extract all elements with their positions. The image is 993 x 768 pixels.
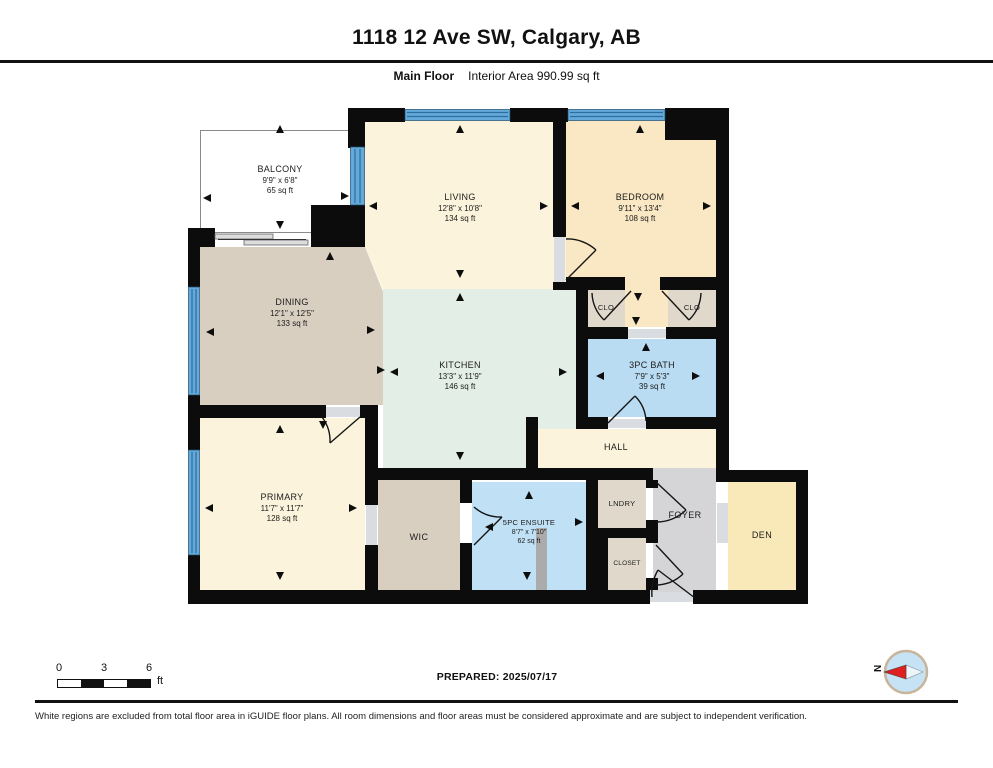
prepared-date: PREPARED: 2025/07/17 xyxy=(437,671,558,683)
scale-bar: 0 3 6 ft xyxy=(57,662,187,694)
compass-icon: N xyxy=(868,644,938,702)
disclaimer-text: White regions are excluded from total fl… xyxy=(35,711,807,722)
room-label-bath: 3PC BATH7'9" x 5'3"39 sq ft xyxy=(629,360,675,392)
page-title: 1118 12 Ave SW, Calgary, AB xyxy=(0,26,993,50)
window-dining-left xyxy=(189,287,200,395)
room-label-ensuite: 5PC ENSUITE8'7" x 7'10"62 sq ft xyxy=(503,518,555,546)
scale-tick-3: 3 xyxy=(101,662,107,674)
room-label-wic: WIC xyxy=(410,532,429,544)
window-balcony-side xyxy=(351,147,365,205)
room-label-den: DEN xyxy=(752,530,772,542)
window-bedroom-top xyxy=(568,110,665,121)
floor-plan-page: 1118 12 Ave SW, Calgary, AB Main FloorIn… xyxy=(0,0,993,768)
room-label-dining: DINING12'1" x 12'5"133 sq ft xyxy=(270,297,314,329)
room-label-kitchen: KITCHEN13'3" x 11'9"146 sq ft xyxy=(438,360,481,392)
room-label-foyer: FOYER xyxy=(668,510,701,522)
scale-tick-6: 6 xyxy=(146,662,152,674)
scale-unit: ft xyxy=(157,675,163,687)
room-label-clo-right: CLO xyxy=(684,303,700,313)
footer-divider xyxy=(35,700,958,703)
room-label-bedroom: BEDROOM9'11" x 13'4"108 sq ft xyxy=(616,192,665,224)
room-label-balcony: BALCONY9'9" x 6'8"65 sq ft xyxy=(257,164,302,196)
room-label-primary: PRIMARY11'7" x 11'7"128 sq ft xyxy=(261,492,304,524)
scale-tick-0: 0 xyxy=(56,662,62,674)
room-foyer-area xyxy=(650,468,716,602)
window-primary-left xyxy=(189,450,200,555)
floor-label: Main Floor xyxy=(393,69,454,83)
scale-bar-segments xyxy=(57,679,151,688)
room-label-closet: CLOSET xyxy=(613,560,640,568)
compass-north-label: N xyxy=(873,665,884,672)
window-living-top xyxy=(405,110,510,121)
header-divider xyxy=(0,60,993,63)
balcony-sliding-door xyxy=(215,234,308,245)
room-label-clo-left: CLO xyxy=(598,303,614,313)
subtitle: Main FloorInterior Area 990.99 sq ft xyxy=(0,69,993,83)
interior-area-label: Interior Area 990.99 sq ft xyxy=(468,69,599,83)
room-label-living: LIVING12'8" x 10'8"134 sq ft xyxy=(438,192,482,224)
floor-plan: BALCONY9'9" x 6'8"65 sq ft LIVING12'8" x… xyxy=(188,108,818,620)
room-label-lndry: LNDRY xyxy=(609,499,636,509)
room-label-hall: HALL xyxy=(604,442,628,454)
clo-vestibule-area xyxy=(625,289,668,327)
